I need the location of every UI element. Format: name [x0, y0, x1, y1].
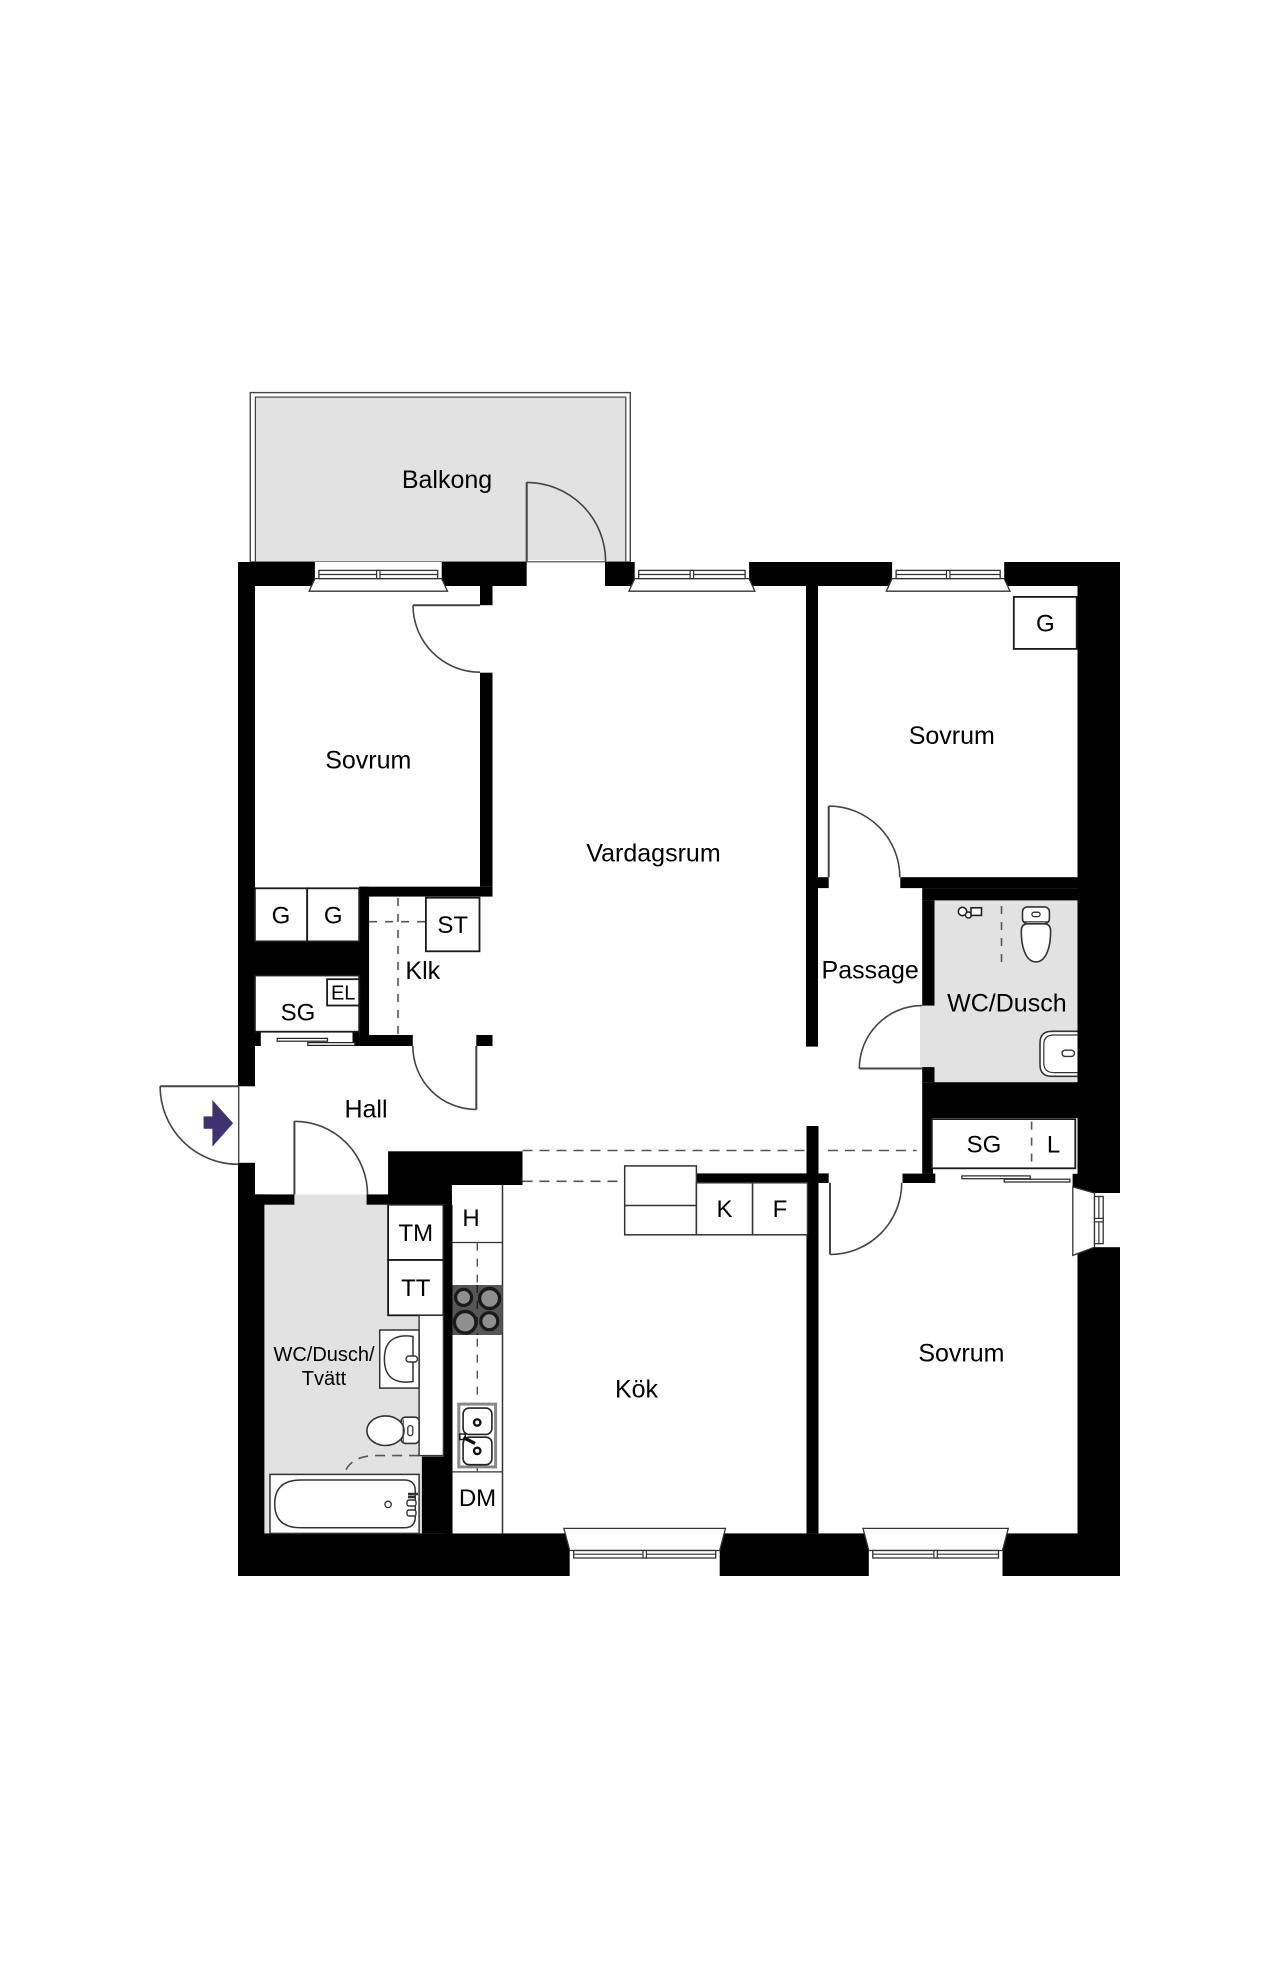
svg-text:Kök: Kök [615, 1375, 659, 1403]
svg-text:K: K [716, 1196, 732, 1223]
svg-text:G: G [1036, 611, 1055, 638]
svg-text:SG: SG [967, 1131, 1002, 1158]
svg-text:DM: DM [459, 1485, 496, 1512]
svg-text:SG: SG [281, 1000, 316, 1027]
svg-text:Tvätt: Tvätt [302, 1368, 347, 1390]
svg-text:G: G [272, 903, 291, 930]
svg-text:L: L [1047, 1131, 1060, 1158]
svg-text:Sovrum: Sovrum [918, 1339, 1004, 1367]
svg-text:Sovrum: Sovrum [325, 747, 411, 775]
svg-text:Vardagsrum: Vardagsrum [586, 840, 720, 868]
svg-text:Sovrum: Sovrum [909, 722, 995, 750]
svg-text:H: H [462, 1205, 479, 1232]
svg-text:G: G [324, 903, 343, 930]
svg-text:EL: EL [331, 983, 355, 1005]
svg-text:F: F [773, 1196, 788, 1223]
svg-text:Hall: Hall [344, 1096, 387, 1124]
svg-text:WC/Dusch: WC/Dusch [947, 990, 1066, 1018]
svg-text:WC/Dusch/: WC/Dusch/ [273, 1344, 375, 1366]
svg-text:Balkong: Balkong [402, 466, 492, 494]
svg-text:Passage: Passage [822, 957, 919, 985]
svg-text:TM: TM [398, 1220, 433, 1247]
svg-text:Klk: Klk [405, 957, 440, 985]
svg-text:ST: ST [437, 912, 468, 939]
svg-text:TT: TT [401, 1275, 431, 1302]
